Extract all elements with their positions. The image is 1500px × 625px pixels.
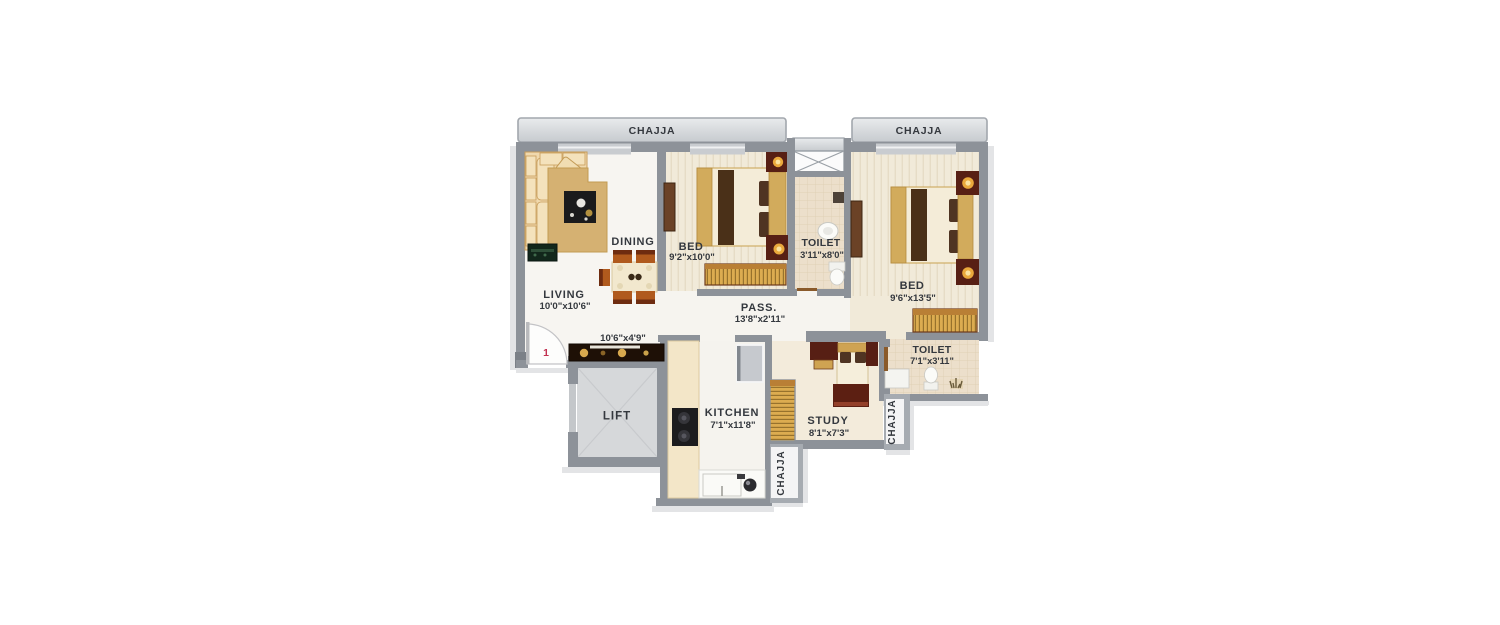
svg-text:9'2"x10'0": 9'2"x10'0" (669, 252, 715, 263)
svg-text:TOILET: TOILET (802, 237, 841, 249)
svg-text:7'1"x3'11": 7'1"x3'11" (910, 356, 954, 366)
svg-text:STUDY: STUDY (807, 415, 848, 427)
svg-text:LIFT: LIFT (603, 411, 631, 423)
svg-text:CHAJJA: CHAJJA (776, 450, 787, 495)
svg-text:10'0"x10'6": 10'0"x10'6" (539, 301, 590, 312)
svg-text:10'6"x4'9": 10'6"x4'9" (600, 333, 646, 344)
svg-text:PASS.: PASS. (741, 302, 777, 314)
svg-text:LIVING: LIVING (543, 289, 584, 301)
svg-text:8'1"x7'3": 8'1"x7'3" (809, 428, 849, 439)
svg-text:KITCHEN: KITCHEN (705, 407, 760, 419)
svg-text:13'8"x2'11": 13'8"x2'11" (735, 314, 785, 325)
svg-text:CHAJJA: CHAJJA (629, 125, 676, 137)
svg-text:3'11"x8'0": 3'11"x8'0" (800, 250, 844, 260)
svg-text:CHAJJA: CHAJJA (896, 125, 943, 137)
svg-text:TOILET: TOILET (913, 344, 952, 356)
svg-text:DINING: DINING (611, 236, 654, 248)
svg-text:1: 1 (543, 347, 549, 359)
svg-text:CHAJJA: CHAJJA (887, 399, 898, 444)
svg-text:9'6"x13'5": 9'6"x13'5" (890, 293, 936, 304)
svg-text:7'1"x11'8": 7'1"x11'8" (710, 420, 755, 431)
svg-text:BED: BED (900, 280, 925, 292)
